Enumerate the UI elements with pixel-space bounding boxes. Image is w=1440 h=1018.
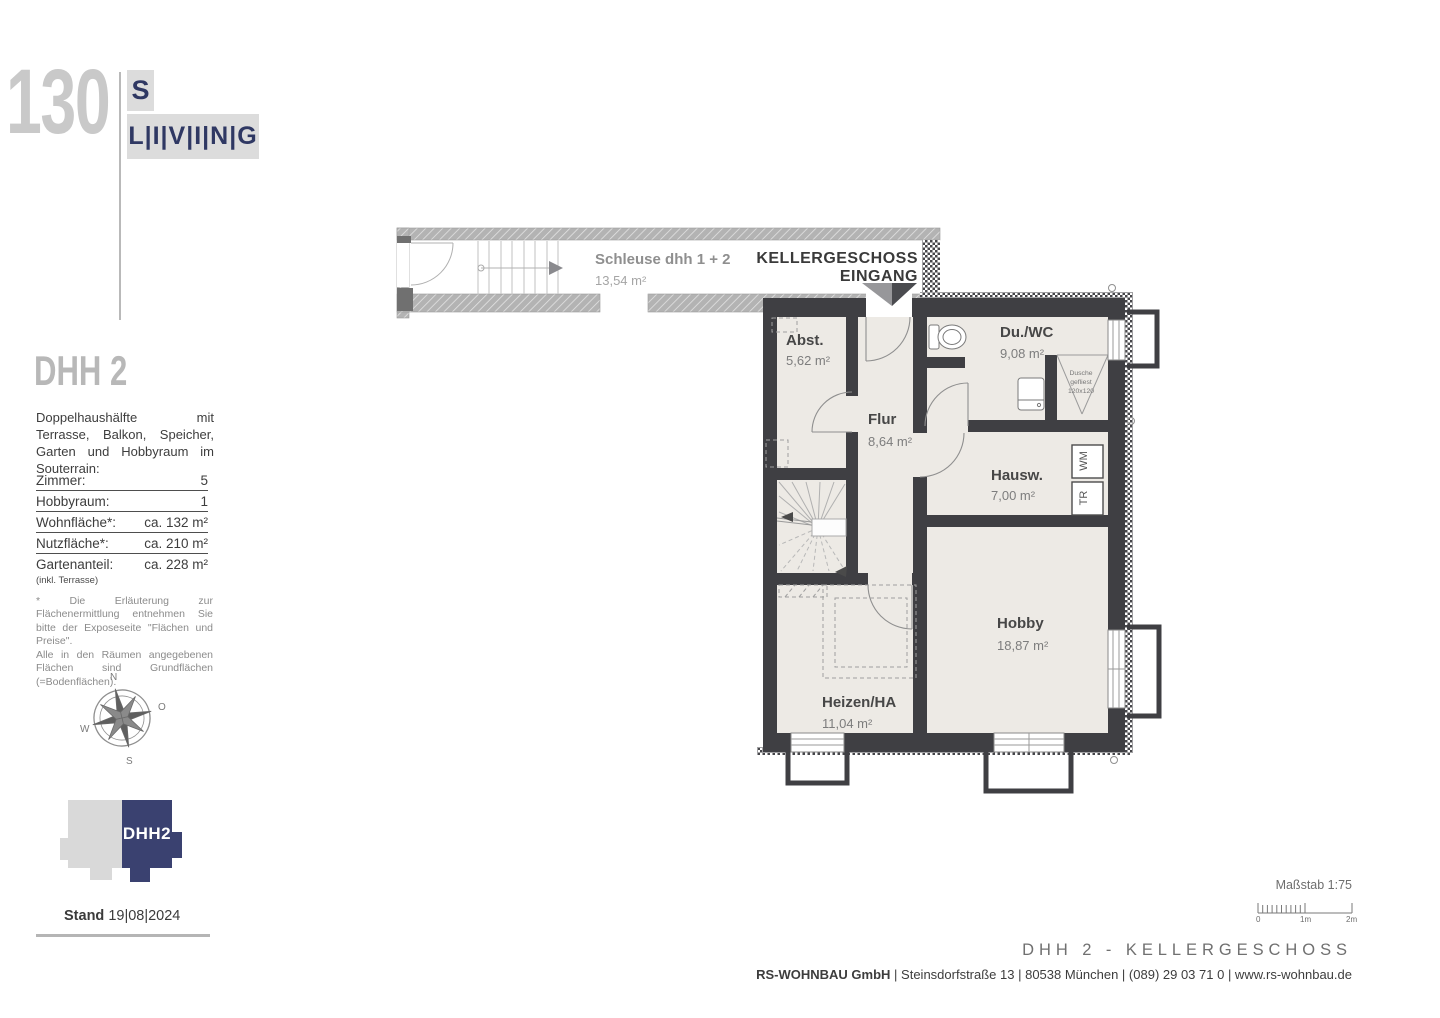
house-icon-label: DHH2: [122, 800, 172, 868]
spec-note: (inkl. Terrasse): [36, 574, 208, 586]
room-area-abst: 5,62 m²: [786, 353, 831, 368]
page-title: DHH 2: [34, 350, 127, 392]
shower-label-2: gefliest: [1070, 379, 1092, 386]
spec-label: Zimmer:: [36, 473, 86, 488]
corridor-stairs: [478, 241, 558, 294]
wc-toilet: [929, 325, 966, 349]
spec-row-gartenanteil: Gartenanteil: ca. 228 m²: [36, 554, 208, 574]
dryer: TR: [1072, 482, 1103, 515]
spec-value: ca. 210 m²: [144, 536, 208, 551]
compass-north-label: N: [110, 672, 117, 683]
room-label-hausw: Hausw.: [991, 467, 1043, 484]
window-duwc: [1108, 320, 1125, 360]
ruler-0-label: 0: [1256, 915, 1261, 924]
house-icon-dhh2: DHH2: [122, 800, 172, 868]
window-hobby-bottom: [994, 733, 1064, 752]
stand-date: Stand 19|08|2024: [64, 908, 180, 924]
room-label-heizen: Heizen/HA: [822, 694, 896, 711]
scale-label: Maßstab 1:75: [1240, 878, 1352, 892]
room-area-heizen: 11,04 m²: [822, 716, 873, 731]
logo-s-badge: S: [127, 70, 154, 111]
room-area-duwc: 9,08 m²: [1000, 346, 1045, 361]
dryer-label: TR: [1078, 491, 1090, 506]
corridor-top-wall: [397, 228, 940, 240]
compass-west-label: W: [80, 724, 90, 735]
company-details: | Steinsdorfstraße 13 | 80538 München | …: [890, 967, 1352, 982]
room-label-schleuse: Schleuse dhh 1 + 2: [595, 251, 730, 268]
room-area-hausw: 7,00 m²: [991, 488, 1036, 503]
spec-value: 5: [200, 473, 208, 488]
washing-machine: WM: [1072, 445, 1103, 478]
spec-label: Hobbyraum:: [36, 494, 110, 509]
spec-label: Nutzfläche*:: [36, 536, 109, 551]
house-icon-bottom-tab-gray: [90, 868, 112, 880]
room-label-hobby: Hobby: [997, 615, 1044, 632]
spec-value: 1: [200, 494, 208, 509]
light-well-hobby-bottom: [986, 749, 1071, 791]
stair-landing: [812, 519, 846, 536]
room-area-flur: 8,64 m²: [868, 434, 913, 449]
footnote-paragraph-1: * Die Erläuterung zur Flächenermittlung …: [36, 595, 213, 649]
house-icon-dhh1: [68, 800, 122, 868]
room-label-flur: Flur: [868, 411, 896, 428]
entrance-annotation: KELLERGESCHOSS EINGANG: [756, 250, 918, 285]
room-label-duwc: Du./WC: [1000, 324, 1053, 341]
spec-value: ca. 132 m²: [144, 515, 208, 530]
insulation-right: [1125, 292, 1133, 753]
logo-number: 130: [6, 56, 109, 148]
ruler-2m-label: 2m: [1346, 915, 1357, 924]
spec-row-hobbyraum: Hobbyraum: 1: [36, 491, 208, 512]
window-hobby-right: [1108, 630, 1125, 708]
compass-star: [86, 682, 158, 754]
entrance-label-line2: EINGANG: [840, 268, 918, 285]
stair-direction-arrow: [549, 261, 563, 275]
corridor-entry-door: [411, 243, 453, 285]
room-area-schleuse: 13,54 m²: [595, 273, 647, 288]
shower-label-3: 120x120: [1068, 388, 1094, 395]
washing-machine-label: WM: [1078, 451, 1090, 471]
door-frame-block: [397, 236, 411, 243]
window-heizen-bottom: [791, 733, 844, 752]
logo-living-badge: L|I|V|I|N|G: [127, 114, 259, 159]
spec-table: Zimmer: 5 Hobbyraum: 1 Wohnfläche*: ca. …: [36, 470, 208, 586]
scale-ruler: 0 1m 2m: [1254, 900, 1358, 924]
company-name: RS-WOHNBAU GmbH: [756, 967, 890, 982]
house-icon-bottom-tab-navy: [130, 868, 150, 882]
corridor-bottom-wall-left: [397, 294, 600, 312]
spec-row-zimmer: Zimmer: 5: [36, 470, 208, 491]
logo-divider-line: [119, 72, 121, 320]
stand-value: 19|08|2024: [108, 908, 180, 924]
shower-label-1: Dusche: [1069, 370, 1092, 377]
company-line: RS-WOHNBAU GmbH | Steinsdorfstraße 13 | …: [560, 967, 1352, 982]
compass-east-label: O: [158, 702, 166, 713]
room-label-abst: Abst.: [786, 332, 824, 349]
corridor-right-exterior-wall: [922, 240, 940, 298]
spec-value: ca. 228 m²: [144, 557, 208, 572]
washbasin: [1018, 378, 1044, 410]
plan-title: DHH 2 - KELLERGESCHOSS: [952, 941, 1352, 960]
spec-row-wohnflaeche: Wohnfläche*: ca. 132 m²: [36, 512, 208, 533]
spec-label: Wohnfläche*:: [36, 515, 116, 530]
house-icon-right-tab: [172, 832, 182, 858]
unit-description: Doppelhaushälfte mit Terrasse, Balkon, S…: [36, 410, 214, 478]
room-area-hobby: 18,87 m²: [997, 638, 1049, 653]
page: 130 S L|I|V|I|N|G DHH 2 Doppelhaushälfte…: [0, 0, 1440, 1018]
house-icon-left-tab: [60, 838, 68, 860]
entrance-label-line1: KELLERGESCHOSS: [756, 250, 918, 267]
sidebar-rule: [36, 934, 210, 937]
compass-south-label: S: [126, 756, 133, 767]
corridor-door-opening: [397, 241, 409, 287]
stand-label: Stand: [64, 908, 104, 924]
floor-plan: Schleuse dhh 1 + 2 13,54 m² KELLERGESCHO…: [390, 220, 1180, 802]
door-frame-block: [397, 288, 413, 311]
spec-label: Gartenanteil:: [36, 557, 113, 572]
compass-rose: N O W S: [74, 668, 170, 768]
spec-row-nutzflaeche: Nutzfläche*: ca. 210 m²: [36, 533, 208, 554]
ruler-1m-label: 1m: [1300, 915, 1311, 924]
